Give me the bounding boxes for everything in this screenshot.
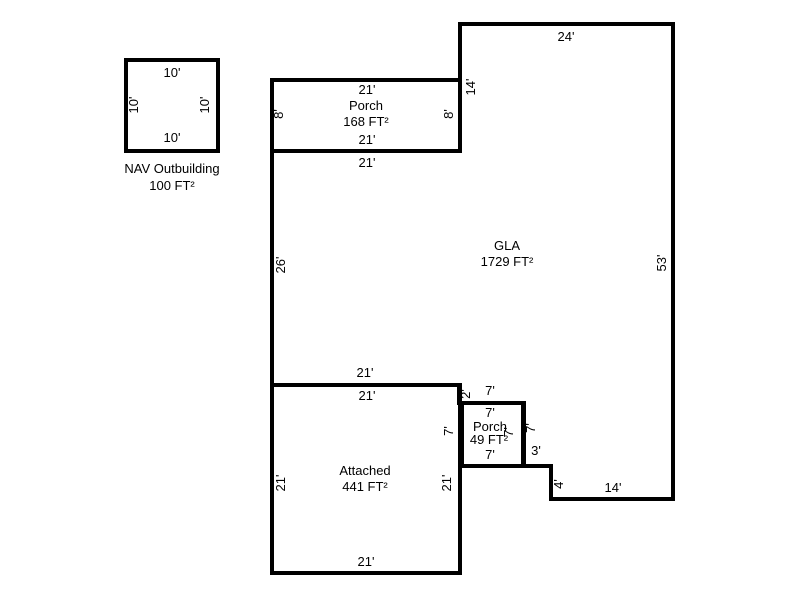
gla-room-area: 1729 FT² bbox=[481, 255, 534, 269]
gla-dim-top-left: 21' bbox=[359, 156, 376, 170]
gla-room-name: GLA bbox=[494, 239, 520, 253]
porch-168-dim-left: 8' bbox=[272, 109, 286, 119]
floor-plan-sketch: 10'10'10'10'NAV Outbuilding100 FT²21'Por… bbox=[0, 0, 800, 600]
attached-room-name: Attached bbox=[339, 464, 390, 478]
gla-dim-top: 24' bbox=[558, 30, 575, 44]
gla-dim-upper-left: 14' bbox=[464, 79, 478, 96]
porch-168-dim-top: 21' bbox=[359, 83, 376, 97]
porch-49-dim-right: 7' bbox=[502, 427, 516, 437]
gla-dim-left: 26' bbox=[274, 257, 288, 274]
attached-dim-left: 21' bbox=[274, 475, 288, 492]
attached-dim-bottom: 21' bbox=[358, 555, 375, 569]
nav-outbuilding-dim-left: 10' bbox=[127, 97, 141, 114]
porch-49-dim-top: 7' bbox=[485, 406, 495, 420]
nav-outbuilding-caption-name: NAV Outbuilding bbox=[124, 162, 219, 176]
gla-dim-notch-across: 3' bbox=[531, 444, 541, 458]
porch-168-room-name: Porch bbox=[349, 99, 383, 113]
nav-outbuilding-caption-area: 100 FT² bbox=[149, 179, 195, 193]
gla-dim-porch-top: 7' bbox=[485, 384, 495, 398]
gla-dim-porch-right: 7' bbox=[524, 423, 538, 433]
porch-168-room-area: 168 FT² bbox=[343, 115, 389, 129]
nav-outbuilding-dim-top: 10' bbox=[164, 66, 181, 80]
porch-49-dim-bottom: 7' bbox=[485, 448, 495, 462]
sketch-outlines bbox=[0, 0, 800, 600]
gla-dim-right: 53' bbox=[655, 255, 669, 272]
attached-dim-right: 21' bbox=[440, 475, 454, 492]
gla-dim-step: 2' bbox=[459, 389, 473, 399]
gla-dim-notch-down: 4' bbox=[552, 479, 566, 489]
porch-168-dim-right: 8' bbox=[442, 109, 456, 119]
attached-room-area: 441 FT² bbox=[342, 480, 388, 494]
gla-dim-bottom: 14' bbox=[605, 481, 622, 495]
gla-dim-bottom-left: 21' bbox=[357, 366, 374, 380]
attached-dim-top: 21' bbox=[359, 389, 376, 403]
nav-outbuilding-dim-right: 10' bbox=[198, 97, 212, 114]
porch-49-dim-left: 7' bbox=[442, 426, 456, 436]
porch-168-dim-bottom: 21' bbox=[359, 133, 376, 147]
nav-outbuilding-dim-bottom: 10' bbox=[164, 131, 181, 145]
